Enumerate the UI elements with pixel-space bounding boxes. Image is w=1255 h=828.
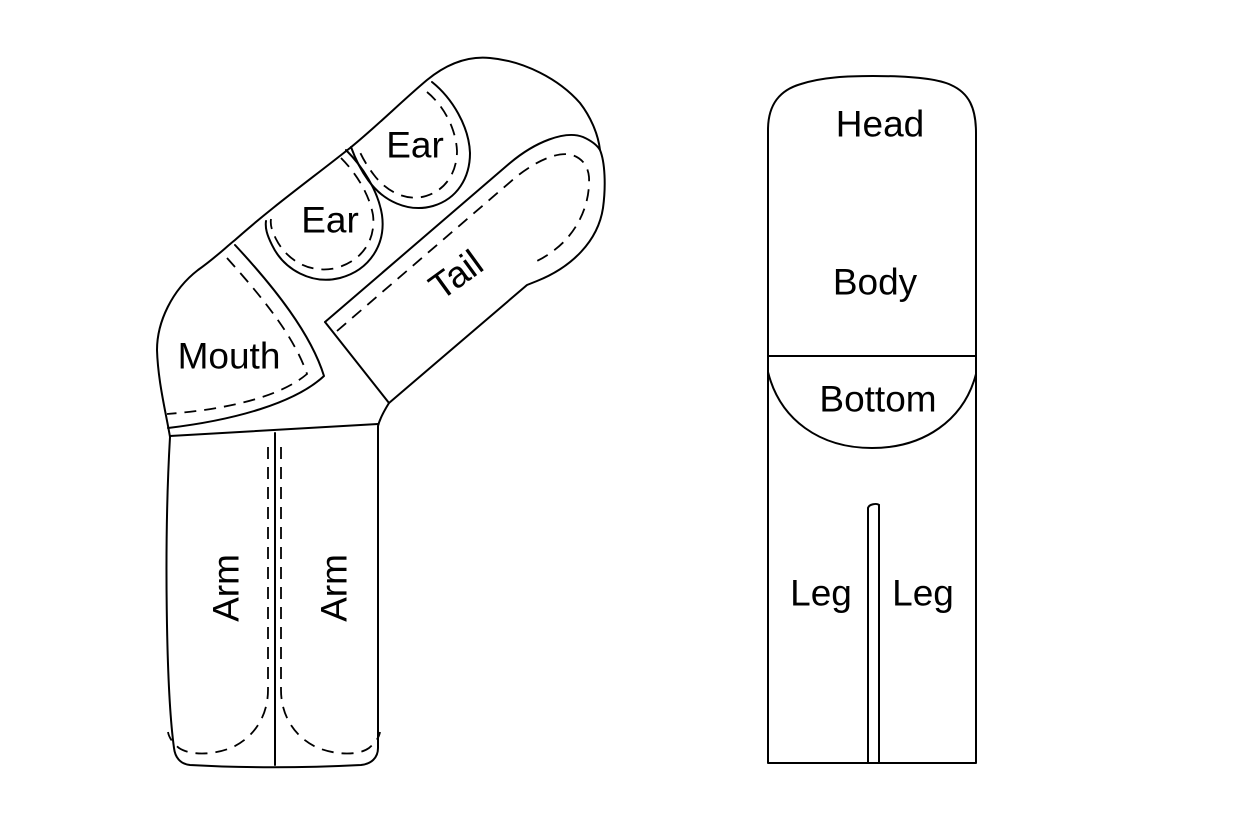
right-pattern-piece: Head Body Bottom Leg Leg xyxy=(768,76,976,763)
tail-end-cut-line xyxy=(325,322,389,403)
label-mouth: Mouth xyxy=(178,336,281,377)
label-ear-top: Ear xyxy=(386,125,444,166)
right-piece-outline xyxy=(768,76,976,763)
label-arm-right: Arm xyxy=(314,554,355,622)
label-arm-left: Arm xyxy=(206,554,247,622)
label-leg-left: Leg xyxy=(790,573,852,614)
label-bottom: Bottom xyxy=(819,379,936,420)
left-pattern-piece: Ear Ear Tail Mouth Arm Arm xyxy=(157,58,605,768)
sewing-pattern-diagram: Ear Ear Tail Mouth Arm Arm Head Body Bot… xyxy=(0,0,1255,828)
label-ear-bottom: Ear xyxy=(301,200,359,241)
label-head: Head xyxy=(836,104,924,145)
left-piece-outline xyxy=(157,58,605,768)
leg-slit-top-cap xyxy=(868,504,879,508)
pattern-canvas: Ear Ear Tail Mouth Arm Arm Head Body Bot… xyxy=(0,0,1255,828)
label-body: Body xyxy=(833,262,918,303)
label-tail: Tail xyxy=(421,242,490,308)
label-leg-right: Leg xyxy=(892,573,954,614)
